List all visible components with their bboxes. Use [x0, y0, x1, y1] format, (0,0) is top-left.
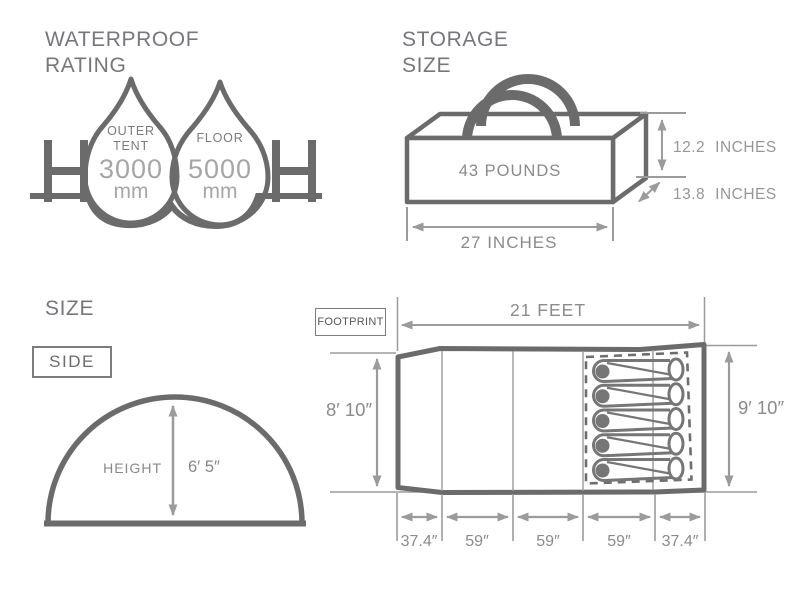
storage-bag-icon	[407, 79, 646, 202]
outer-tent-label: OUTER TENT	[91, 124, 171, 153]
floor-rating-unit: mm	[180, 180, 260, 204]
storage-width-dimension-label: 27 INCHES	[425, 233, 593, 253]
tent-spec-diagram: WATERPROOF RATING OUTER TENT 3000 mm FLO…	[0, 0, 800, 600]
footprint-segment-label: 59″	[587, 533, 651, 551]
footprint-right-height-label: 9′ 10″	[738, 397, 784, 419]
footprint-segment-label: 59″	[516, 533, 580, 551]
storage-depth-dimension-label: 13.8INCHES	[673, 186, 777, 204]
footprint-left-height-label: 8′ 10″	[300, 399, 372, 421]
footprint-length-label: 21 FEET	[488, 300, 608, 321]
storage-title-line2: SIZE	[402, 53, 509, 79]
storage-weight-label: 43 POUNDS	[425, 162, 595, 181]
hydrostatic-left-h-icon	[44, 140, 88, 202]
floor-label: FLOOR	[180, 131, 260, 146]
outer-tent-rating-unit: mm	[91, 180, 171, 204]
storage-height-dimension-label: 12.2INCHES	[673, 139, 777, 157]
outer-tent-label-line2: TENT	[91, 139, 171, 154]
storage-title-line1: STORAGE	[402, 27, 509, 53]
storage-depth-dimension	[639, 183, 660, 202]
storage-size-title: STORAGE SIZE	[402, 27, 509, 79]
side-view-label: SIDE	[32, 346, 112, 378]
storage-height-unit: INCHES	[715, 139, 777, 156]
footprint-view-label: FOOTPRINT	[315, 308, 386, 336]
diagram-graphics	[0, 0, 800, 600]
waterproof-rating-title: WATERPROOF RATING	[45, 27, 199, 79]
storage-depth-value: 13.8	[673, 186, 705, 203]
size-title: SIZE	[45, 296, 94, 322]
footprint-segment-label: 37.4″	[648, 533, 712, 551]
outer-tent-label-line1: OUTER	[91, 124, 171, 139]
footprint-segment-label: 37.4″	[387, 533, 451, 551]
hydrostatic-right-h-icon	[272, 140, 316, 202]
footprint-segment-label: 59″	[445, 533, 509, 551]
side-height-value: 6′ 5″	[188, 458, 220, 477]
waterproof-title-line2: RATING	[45, 53, 199, 79]
storage-depth-unit: INCHES	[715, 186, 777, 203]
side-height-label: HEIGHT	[78, 460, 162, 476]
waterproof-title-line1: WATERPROOF	[45, 27, 199, 53]
storage-height-value: 12.2	[673, 139, 705, 156]
